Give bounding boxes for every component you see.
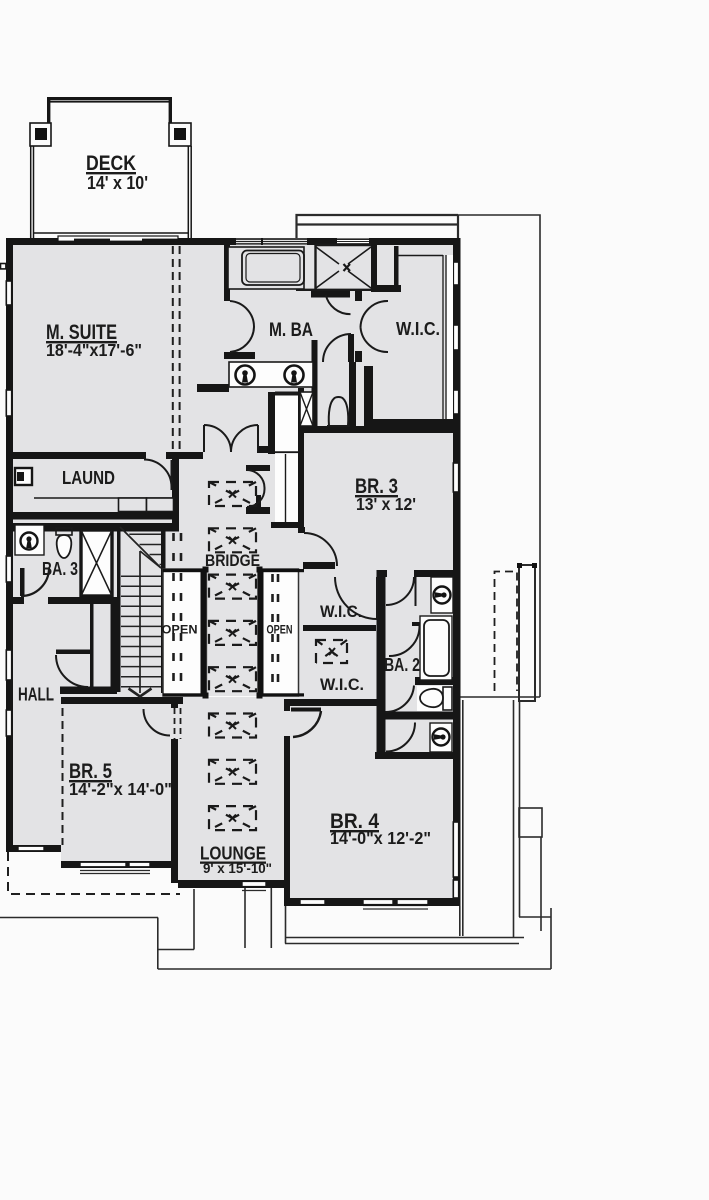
svg-text:LAUND: LAUND (62, 467, 115, 488)
svg-text:OPEN: OPEN (162, 623, 198, 637)
svg-text:HALL: HALL (18, 685, 54, 705)
svg-text:9' x 15'-10": 9' x 15'-10" (203, 860, 272, 876)
svg-text:BRIDGE: BRIDGE (205, 552, 260, 570)
svg-text:W.I.C.: W.I.C. (320, 602, 362, 621)
svg-text:DECK: DECK (86, 152, 136, 175)
svg-text:14' x 10': 14' x 10' (87, 173, 148, 193)
svg-text:OPEN: OPEN (267, 625, 293, 637)
svg-text:14'-0"x 12'-2": 14'-0"x 12'-2" (330, 828, 431, 848)
svg-text:W.I.C.: W.I.C. (320, 675, 364, 694)
svg-text:BA. 2: BA. 2 (384, 655, 420, 675)
svg-text:M. BA: M. BA (269, 320, 313, 341)
svg-text:14'-2"x 14'-0": 14'-2"x 14'-0" (69, 779, 172, 799)
svg-text:18'-4"x17'-6": 18'-4"x17'-6" (46, 340, 142, 360)
svg-text:W.I.C.: W.I.C. (396, 319, 440, 339)
svg-text:13' x 12': 13' x 12' (356, 494, 416, 514)
svg-text:BA. 3: BA. 3 (42, 559, 78, 579)
